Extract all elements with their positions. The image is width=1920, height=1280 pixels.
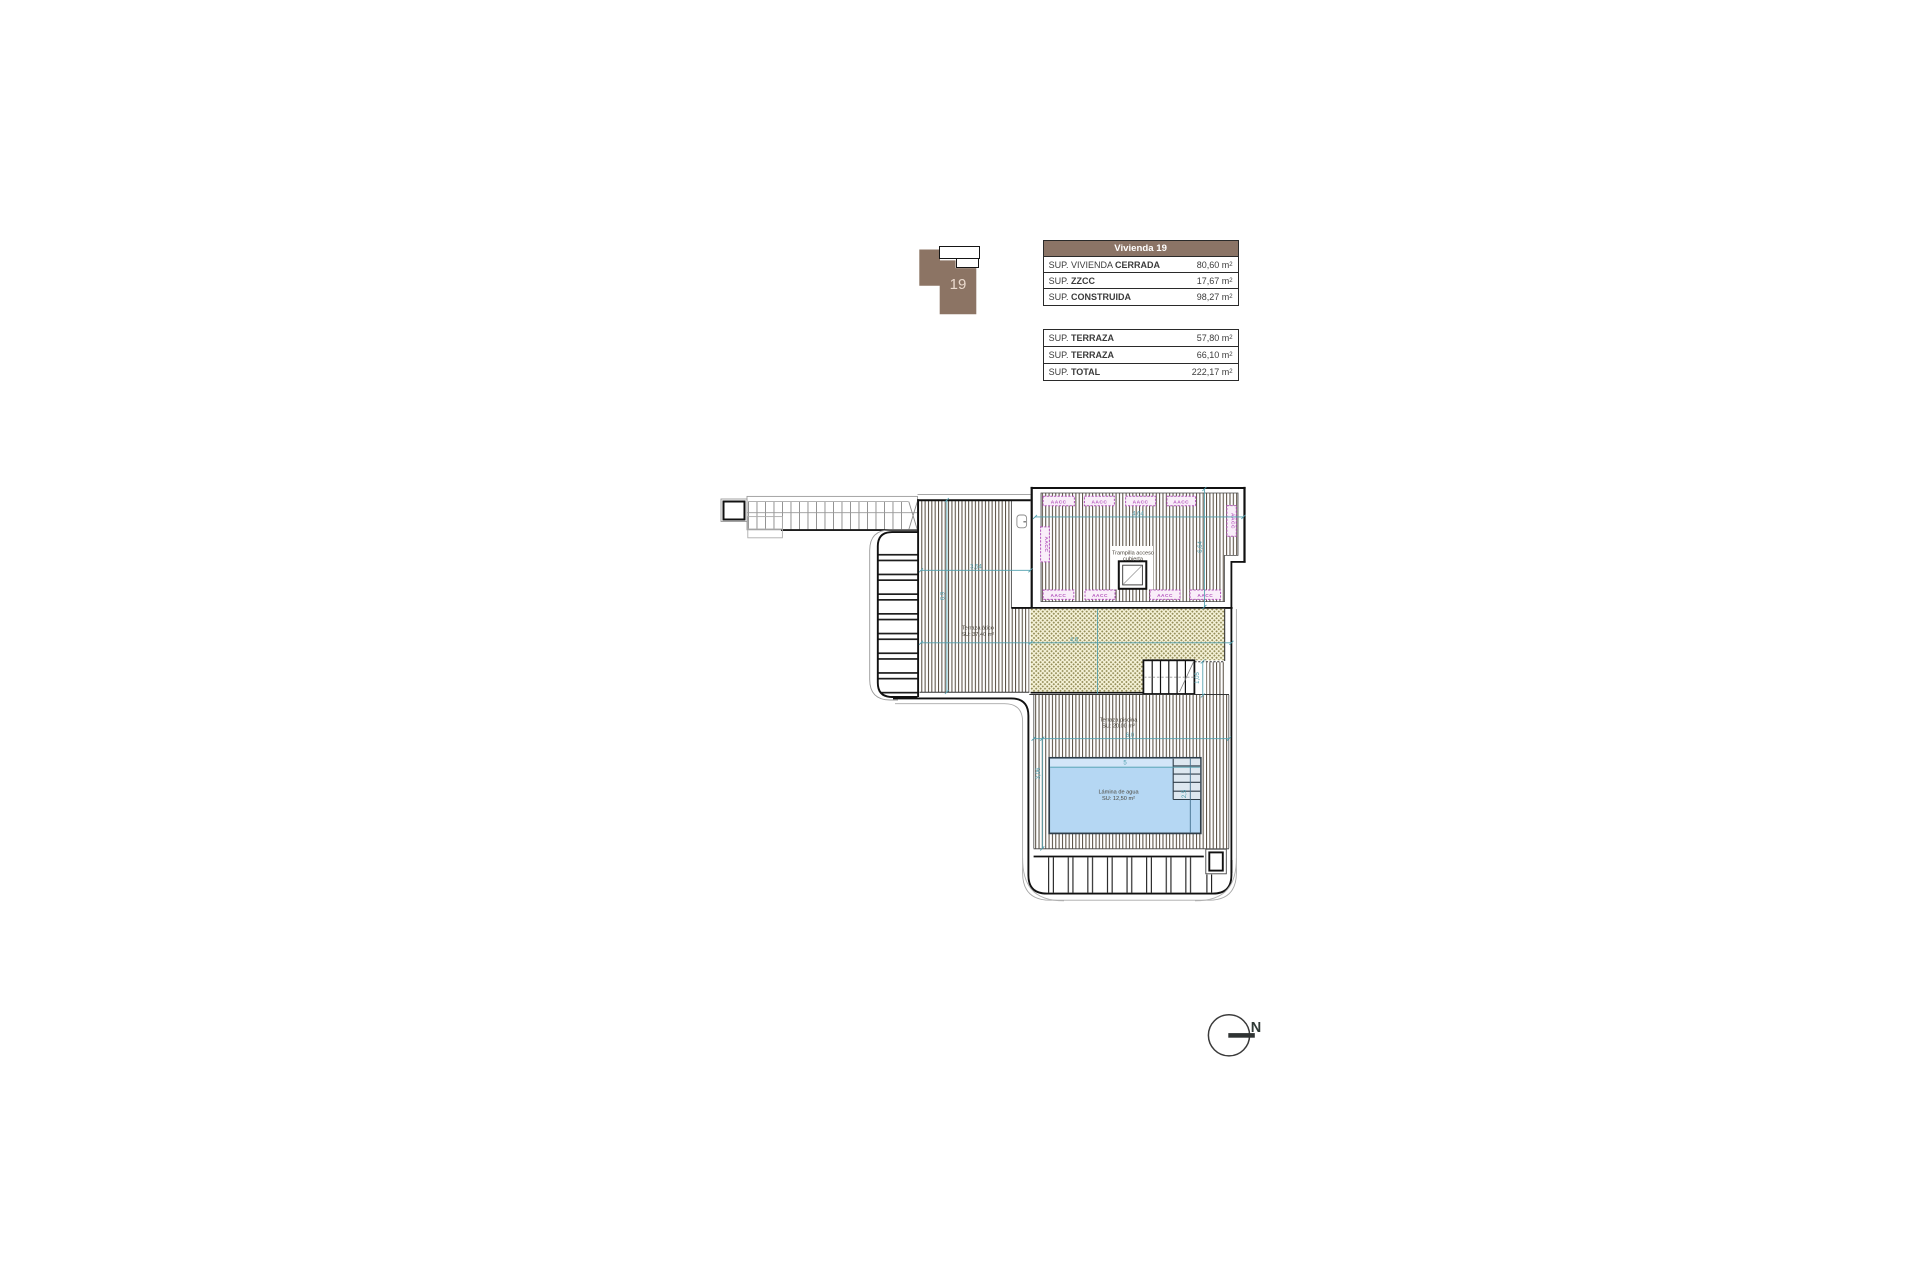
svg-text:2,5: 2,5 [1182,789,1188,798]
svg-text:Terraza ático: Terraza ático [962,626,994,632]
svg-text:4,64: 4,64 [1132,512,1144,518]
svg-text:AACC: AACC [1133,499,1149,505]
svg-text:AACC: AACC [1051,499,1067,505]
svg-text:AACC: AACC [1092,593,1108,599]
svg-text:4,6: 4,6 [1070,638,1079,644]
svg-text:AACC: AACC [1050,593,1066,599]
svg-text:AACC: AACC [1091,499,1107,505]
svg-text:3,06: 3,06 [1036,767,1042,779]
svg-text:3,54: 3,54 [970,565,982,571]
svg-text:Lámina de agua: Lámina de agua [1098,790,1139,796]
svg-text:6,9: 6,9 [941,591,947,600]
svg-text:6,64: 6,64 [1198,541,1204,553]
svg-text:AACC: AACC [1197,593,1213,599]
svg-text:SU: 37,40 m²: SU: 37,40 m² [961,632,994,638]
svg-text:SU: 12,50 m²: SU: 12,50 m² [1102,796,1135,802]
svg-text:Terraza piscina: Terraza piscina [1100,717,1139,723]
svg-text:AACC: AACC [1173,499,1189,505]
svg-text:AACC: AACC [1043,536,1049,552]
svg-text:Trampilla acceso: Trampilla acceso [1112,550,1154,556]
svg-text:N: N [1251,1020,1261,1036]
svg-text:SU: 20,00 m²: SU: 20,00 m² [1102,724,1135,730]
svg-text:AACC: AACC [1230,513,1236,529]
svg-text:AACC: AACC [1157,593,1173,599]
svg-text:6,0: 6,0 [1126,733,1135,739]
svg-text:1,05: 1,05 [1195,672,1201,684]
